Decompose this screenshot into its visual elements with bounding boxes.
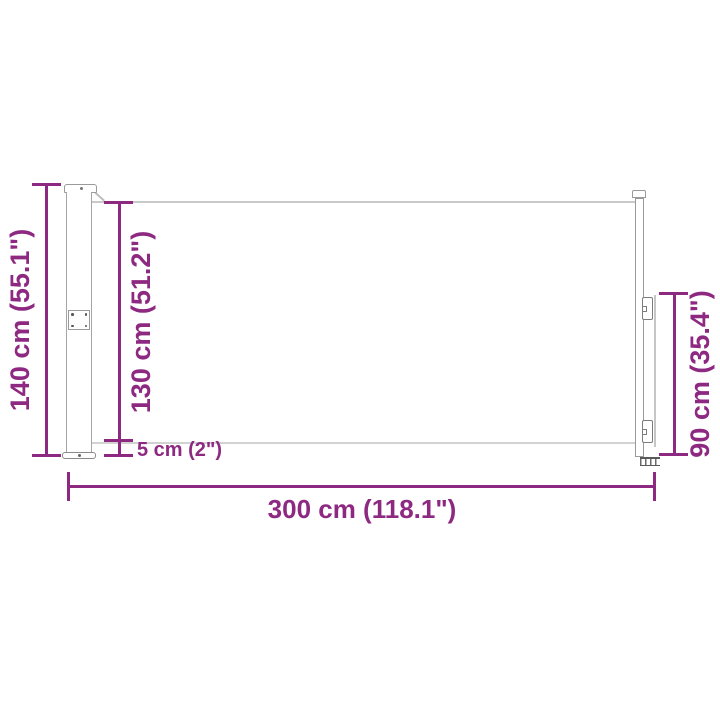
front-bar	[635, 198, 644, 457]
front-bar-rail-line	[654, 295, 656, 447]
dim-total-height-line	[45, 184, 48, 457]
screw-dot	[78, 454, 81, 457]
post-mounting-plate	[68, 310, 90, 330]
product-dimension-diagram: 140 cm (55.1") 130 cm (51.2") 5 cm (2") …	[0, 0, 720, 720]
screw-dot	[80, 187, 83, 190]
front-bar-cap	[632, 190, 646, 198]
dim-clearance-label: 5 cm (2")	[137, 440, 222, 460]
dim-end-height-label: 90 cm (35.4")	[680, 224, 720, 524]
post-foot-plate	[62, 452, 96, 459]
fabric-top-corner-line	[95, 192, 105, 201]
dim-width-tick-left	[67, 472, 70, 501]
dim-total-height-label: 140 cm (55.1")	[0, 170, 40, 470]
dim-end-height-line	[673, 293, 676, 456]
dim-fabric-height-label: 130 cm (51.2")	[121, 172, 161, 472]
front-bar-handle-lower	[642, 420, 653, 443]
awning-fabric-panel	[92, 201, 636, 444]
front-bar-handle-upper	[642, 297, 653, 320]
dim-width-tick-right	[653, 472, 656, 501]
dim-clearance-tick-bottom	[104, 454, 133, 457]
dim-width-label: 300 cm (118.1")	[212, 496, 512, 522]
dim-width-line	[68, 485, 655, 488]
front-bar-foot-bracket	[640, 457, 660, 466]
